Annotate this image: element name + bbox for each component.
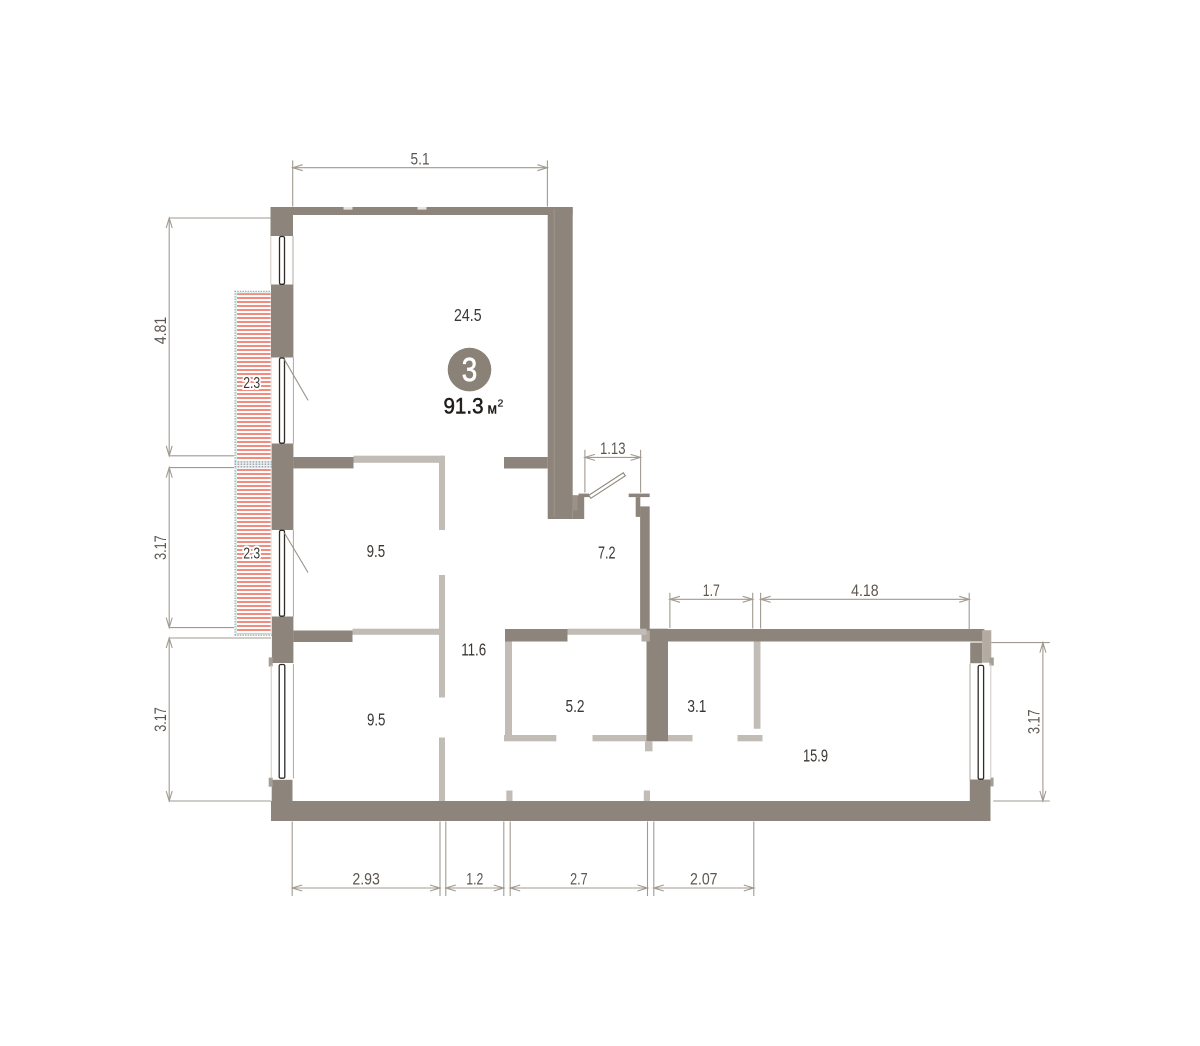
svg-text:9.5: 9.5 bbox=[367, 541, 386, 561]
svg-text:2.7: 2.7 bbox=[570, 871, 588, 889]
svg-text:15.9: 15.9 bbox=[803, 746, 828, 766]
svg-text:5.1: 5.1 bbox=[411, 150, 430, 168]
svg-text:1.2: 1.2 bbox=[466, 871, 483, 889]
svg-text:2: 2 bbox=[498, 398, 504, 410]
svg-text:3.1: 3.1 bbox=[687, 696, 706, 716]
svg-text:3.17: 3.17 bbox=[152, 535, 170, 560]
svg-text:3.17: 3.17 bbox=[152, 707, 170, 732]
svg-text:3: 3 bbox=[462, 351, 478, 388]
svg-text:4.18: 4.18 bbox=[851, 582, 879, 600]
svg-text:2.07: 2.07 bbox=[690, 871, 718, 889]
svg-text:9.5: 9.5 bbox=[367, 710, 386, 730]
svg-text:2.93: 2.93 bbox=[352, 871, 380, 889]
svg-text:7.2: 7.2 bbox=[598, 543, 616, 563]
svg-text:11.6: 11.6 bbox=[461, 640, 486, 660]
svg-text:1.13: 1.13 bbox=[600, 440, 626, 458]
svg-text:4.81: 4.81 bbox=[152, 317, 170, 345]
svg-text:1.7: 1.7 bbox=[703, 582, 720, 600]
svg-text:м: м bbox=[488, 402, 498, 418]
svg-text:3.17: 3.17 bbox=[1026, 710, 1044, 735]
svg-text:2.3: 2.3 bbox=[243, 375, 260, 392]
svg-text:91.3: 91.3 bbox=[444, 394, 484, 419]
svg-text:2.3: 2.3 bbox=[243, 546, 260, 563]
svg-text:5.2: 5.2 bbox=[566, 696, 585, 716]
svg-text:24.5: 24.5 bbox=[454, 305, 482, 325]
